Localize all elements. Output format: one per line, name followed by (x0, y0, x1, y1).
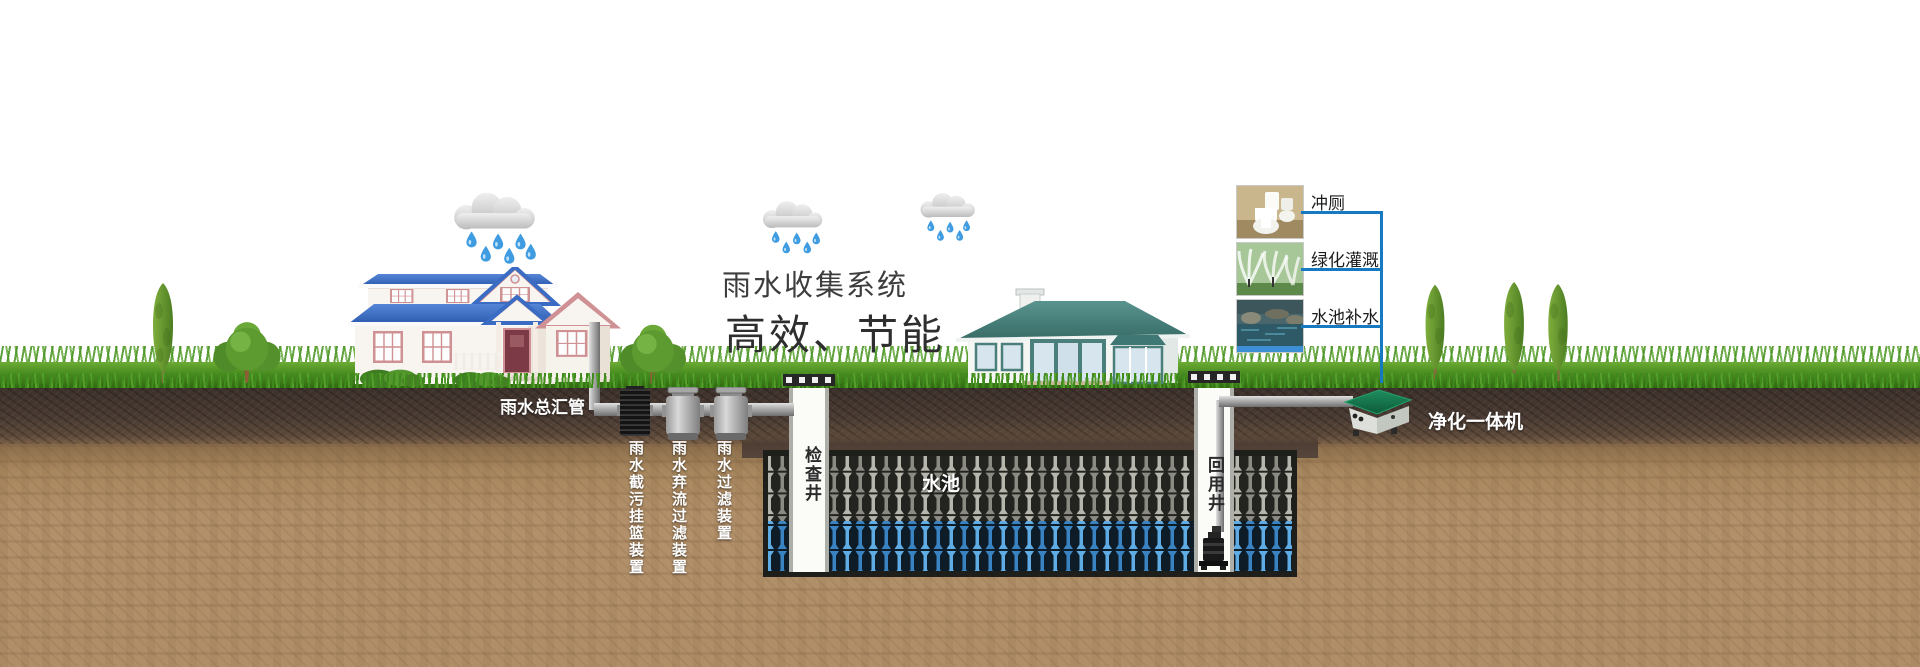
diagram-subtitle: 高效、节能 (725, 301, 945, 361)
inspection-well-cap (783, 374, 835, 386)
submersible-pump (1197, 526, 1231, 572)
rain-cloud-icon (757, 199, 829, 258)
connector-line (1301, 268, 1383, 271)
rainwater-collection-system-diagram: 水池 检查井 回用井 雨水总汇管 (0, 0, 1920, 667)
reuse-supply-pipe (1219, 396, 1353, 407)
irrigation-photo (1237, 243, 1303, 295)
pond-refill-photo (1237, 300, 1303, 352)
diagram-title: 雨水收集系统 (722, 262, 908, 304)
inspection-well-label: 检查井 (799, 446, 824, 503)
filter-device-label: 雨水过滤装置 (714, 440, 735, 542)
connector-line (1301, 325, 1383, 328)
trash-basket-device (617, 386, 653, 438)
rain-cloud-icon (915, 191, 981, 245)
diversion-filter-device-label: 雨水弃流过滤装置 (669, 440, 690, 576)
purifier-label: 净化一体机 (1428, 407, 1523, 434)
poplar-tree (1540, 282, 1576, 383)
toilet-photo (1237, 186, 1303, 238)
filter-device (710, 387, 752, 443)
purifier-machine (1343, 386, 1413, 438)
poplar-tree (144, 281, 182, 385)
grass-fringe (0, 373, 1920, 388)
connector-line (1301, 211, 1383, 214)
trash-basket-device-label: 雨水截污挂篮装置 (626, 440, 647, 576)
poplar-tree (1496, 280, 1532, 383)
reuse-well-label: 回用井 (1202, 456, 1227, 513)
poplar-tree (1418, 281, 1452, 383)
main-pipe-label: 雨水总汇管 (500, 393, 585, 418)
tank-label: 水池 (922, 469, 960, 496)
connector-line-vertical (1380, 211, 1383, 383)
house-downpipe (589, 322, 600, 410)
reuse-well-cap (1188, 371, 1240, 383)
diversion-filter-device (662, 387, 704, 443)
rain-cloud-icon (446, 190, 544, 270)
single-story-house (952, 287, 1194, 387)
